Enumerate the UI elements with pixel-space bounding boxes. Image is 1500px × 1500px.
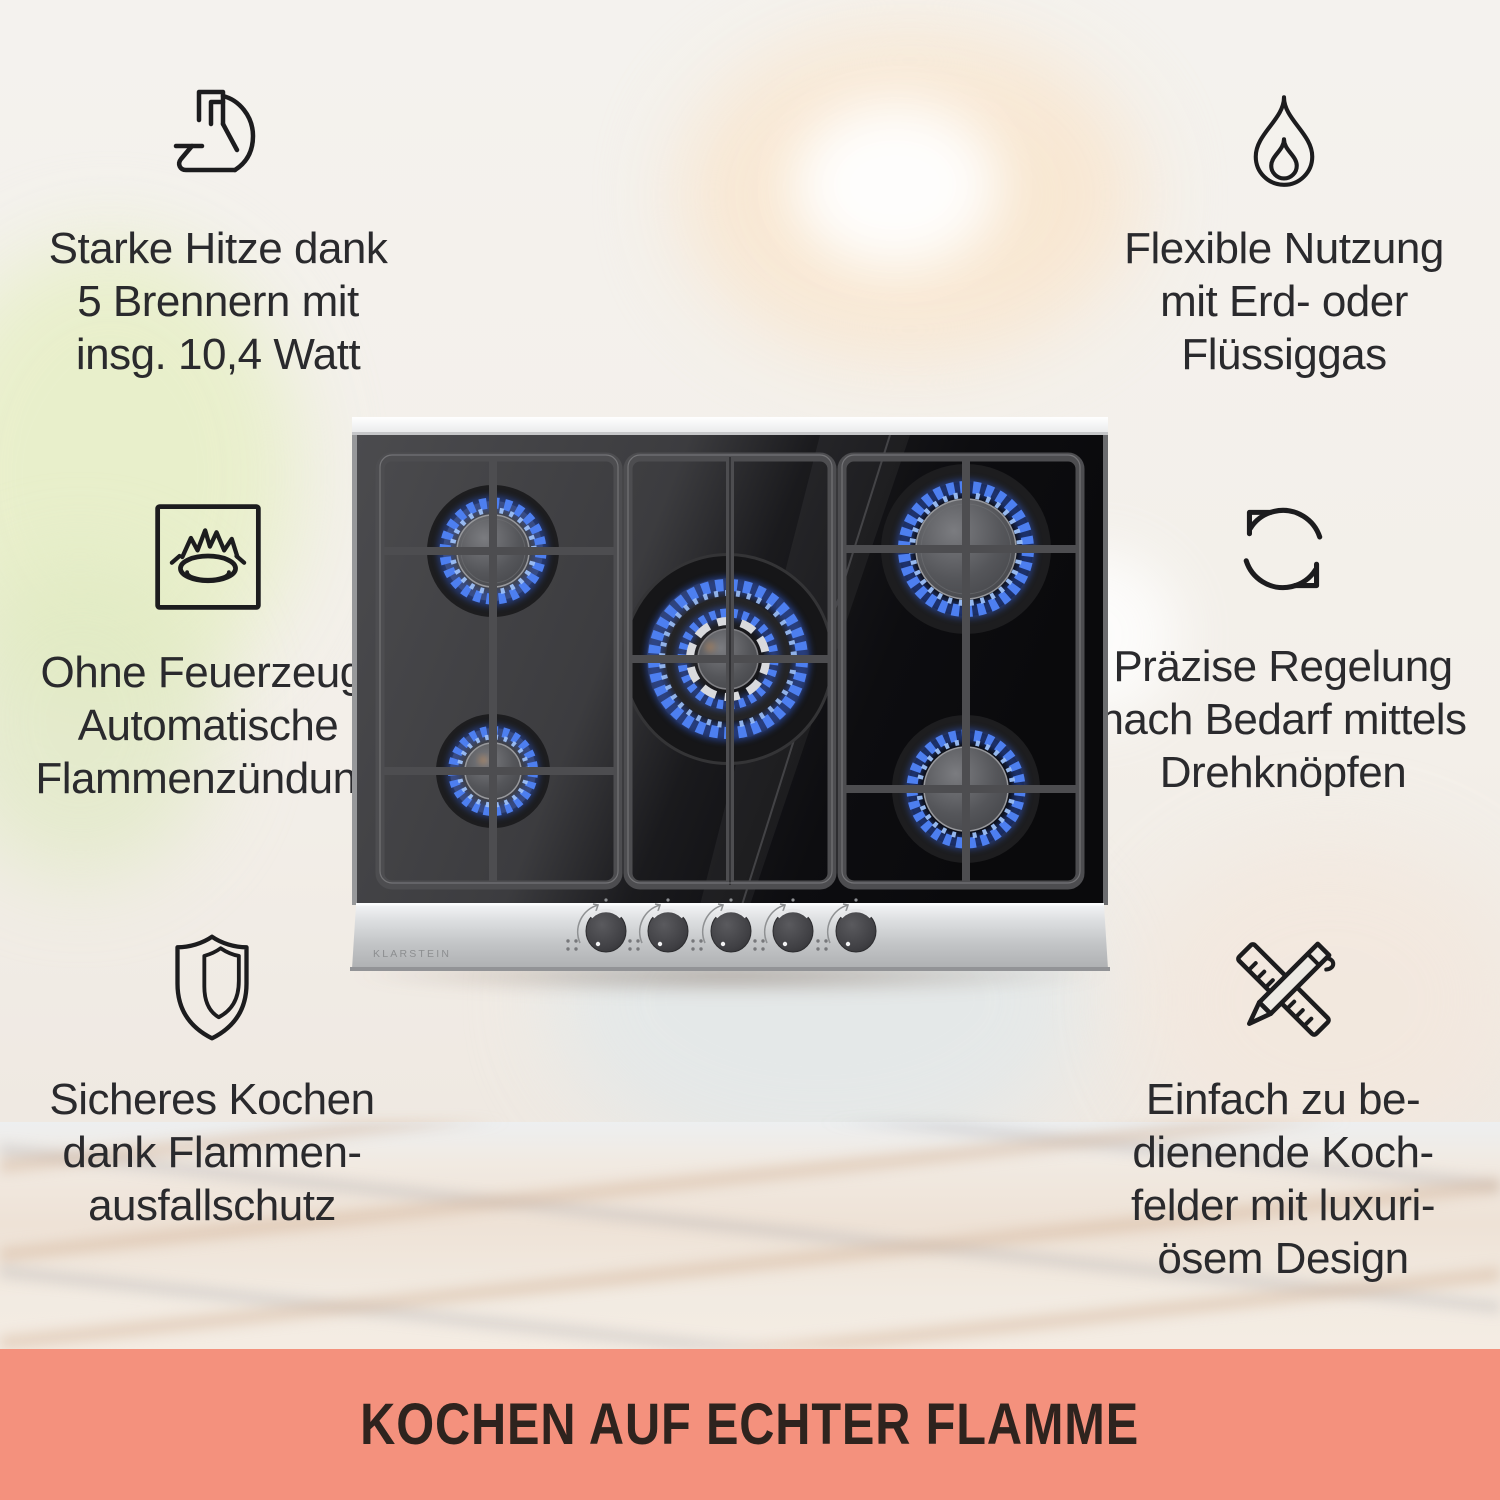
feature-text: Sicheres Kochen dank Flammen- ausfallsch… (49, 1073, 374, 1232)
shield-icon (162, 931, 262, 1046)
feature-text-line: Flammenzündung (35, 752, 380, 805)
feature-text-line: Sicheres Kochen (49, 1073, 374, 1126)
feature-text-line: mit Erd- oder (1124, 275, 1444, 328)
hob-back-edge (352, 417, 1108, 433)
ruler-pencil-icon (1223, 929, 1344, 1050)
feature-text-line: felder mit luxuri- (1131, 1179, 1435, 1232)
gas-hob-image: KLARSTEIN (350, 417, 1110, 973)
feature-text-line: Flüssiggas (1124, 328, 1444, 381)
brand-logo: KLARSTEIN (373, 948, 451, 960)
feature-text-line: insg. 10,4 Watt (49, 328, 388, 381)
feature-text-line: dank Flammen- (49, 1126, 374, 1179)
feature-text-line: Starke Hitze dank (49, 222, 388, 275)
burner-ignition-icon (151, 500, 265, 614)
feature-text: Präzise Regelung nach Bedarf mittels Dre… (1099, 640, 1466, 799)
feature-text: Einfach zu be- dienende Koch- felder mit… (1131, 1073, 1435, 1285)
banner-title: KOCHEN AUF ECHTER FLAMME (361, 1391, 1140, 1458)
feature-text-line: Automatische (35, 699, 380, 752)
feature-text-line: Ohne Feuerzeug: (35, 646, 380, 699)
feature-text: Starke Hitze dank 5 Brennern mit insg. 1… (49, 222, 388, 381)
muscle-arm-icon (168, 86, 268, 196)
feature-text-line: nach Bedarf mittels (1099, 693, 1466, 746)
feature-precise-control: Präzise Regelung nach Bedarf mittels Dre… (1043, 489, 1500, 799)
feature-text: Flexible Nutzung mit Erd- oder Flüssigga… (1124, 222, 1444, 381)
feature-text-line: Flexible Nutzung (1124, 222, 1444, 275)
product-infographic: Starke Hitze dank 5 Brennern mit insg. 1… (0, 0, 1500, 1500)
feature-strong-heat: Starke Hitze dank 5 Brennern mit insg. 1… (0, 86, 458, 381)
rotate-arrows-icon (1222, 489, 1344, 611)
feature-text-line: Einfach zu be- (1131, 1073, 1435, 1126)
light-glow (790, 100, 1000, 270)
feature-flexible-gas: Flexible Nutzung mit Erd- oder Flüssigga… (1044, 88, 1500, 381)
bottom-banner: KOCHEN AUF ECHTER FLAMME (0, 1349, 1500, 1500)
feature-text-line: Drehknöpfen (1099, 746, 1466, 799)
feature-text-line: dienende Koch- (1131, 1126, 1435, 1179)
feature-text: Ohne Feuerzeug: Automatische Flammenzünd… (35, 646, 380, 805)
feature-text-line: 5 Brennern mit (49, 275, 388, 328)
feature-text-line: Präzise Regelung (1099, 640, 1466, 693)
control-panel: KLARSTEIN (350, 898, 1110, 971)
feature-text-line: ausfallschutz (49, 1179, 374, 1232)
flame-icon (1243, 88, 1325, 196)
feature-text-line: ösem Design (1131, 1232, 1435, 1285)
